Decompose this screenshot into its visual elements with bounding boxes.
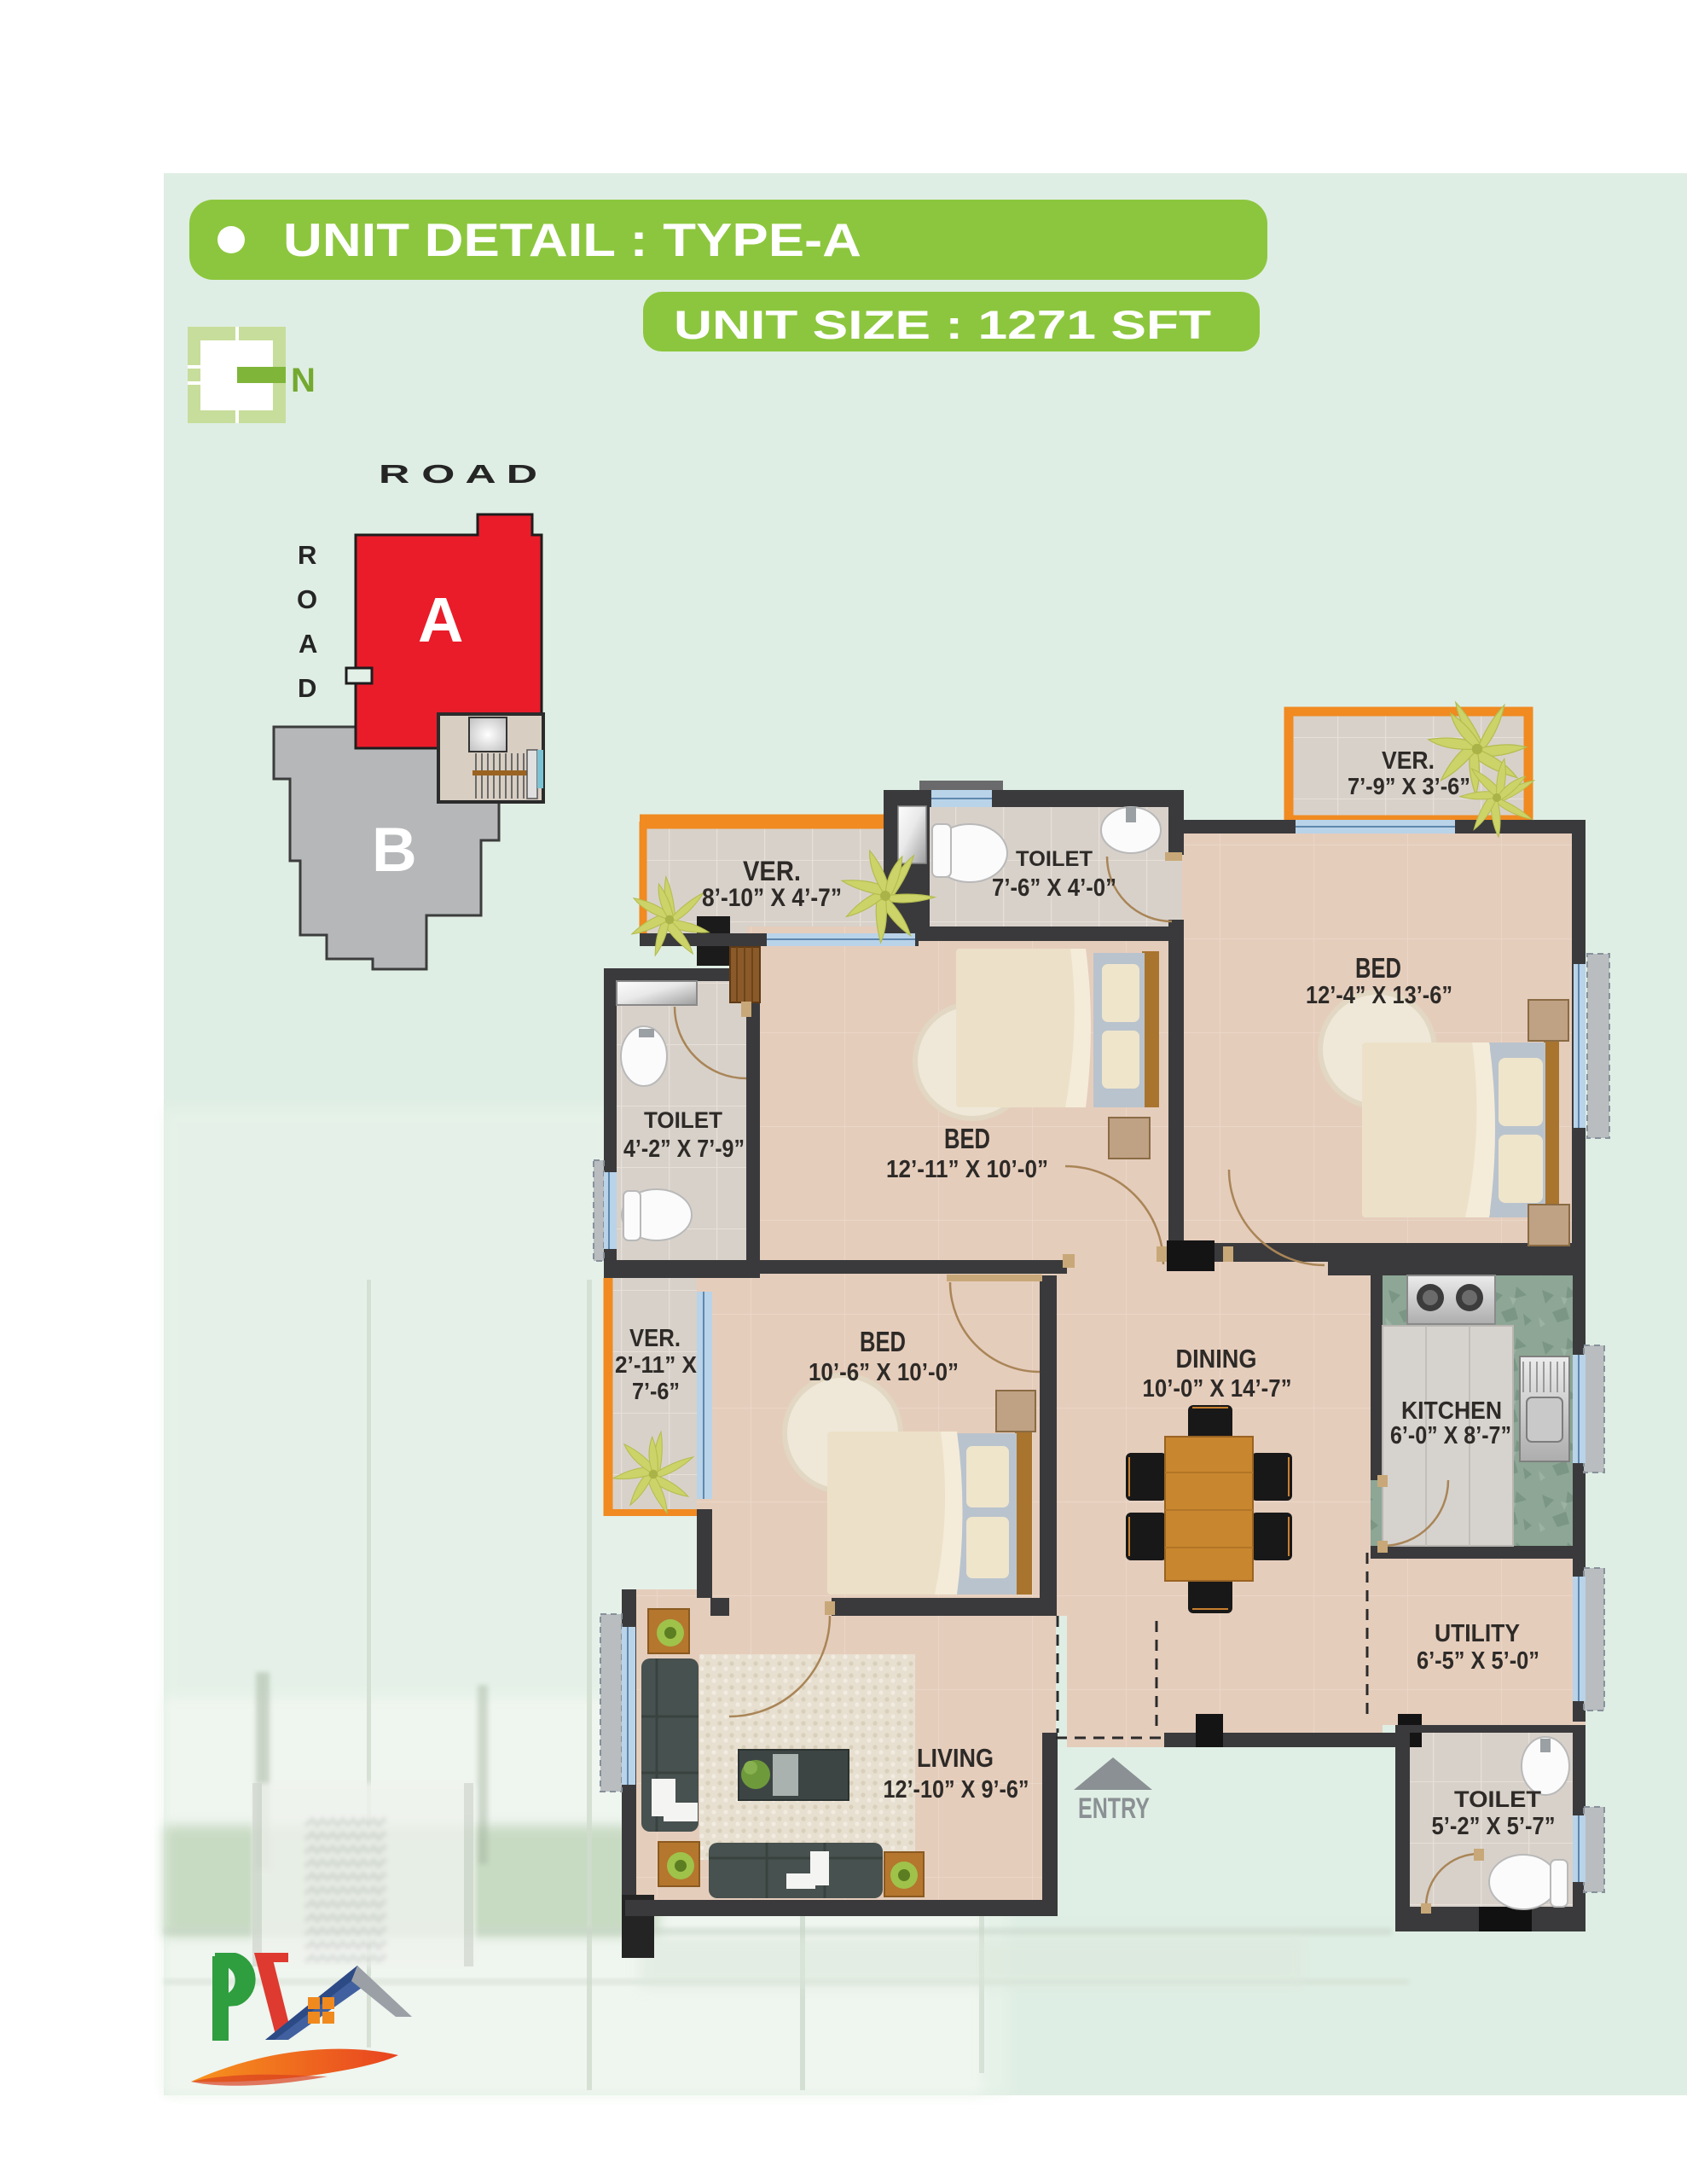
svg-text:UNIT SIZE : 1271 SFT: UNIT SIZE : 1271 SFT bbox=[674, 302, 1211, 347]
svg-text:VER.: VER. bbox=[629, 1325, 681, 1352]
svg-text:A: A bbox=[418, 584, 463, 655]
svg-text:TOILET: TOILET bbox=[644, 1107, 722, 1133]
svg-text:10’-0” X 14’-7”: 10’-0” X 14’-7” bbox=[1143, 1375, 1292, 1403]
svg-text:12’-11” X 10’-0”: 12’-11” X 10’-0” bbox=[886, 1156, 1048, 1183]
svg-text:10’-6” X 10’-0”: 10’-6” X 10’-0” bbox=[809, 1359, 959, 1386]
svg-text:VER.: VER. bbox=[743, 856, 801, 886]
svg-text:TOILET: TOILET bbox=[1454, 1786, 1542, 1812]
svg-text:2’-11” X: 2’-11” X bbox=[615, 1351, 697, 1378]
svg-text:5’-2” X 5’-7”: 5’-2” X 5’-7” bbox=[1432, 1813, 1556, 1840]
svg-text:O: O bbox=[297, 584, 317, 614]
svg-text:12’-10” X 9’-6”: 12’-10” X 9’-6” bbox=[884, 1776, 1029, 1804]
svg-text:VER.: VER. bbox=[1382, 747, 1435, 775]
svg-text:N: N bbox=[291, 362, 316, 399]
svg-text:8’-10” X 4’-7”: 8’-10” X 4’-7” bbox=[702, 884, 842, 912]
svg-text:TOILET: TOILET bbox=[1016, 847, 1093, 871]
svg-text:12’-4” X 13’-6”: 12’-4” X 13’-6” bbox=[1306, 982, 1452, 1009]
svg-text:KITCHEN: KITCHEN bbox=[1401, 1397, 1502, 1425]
svg-text:ENTRY: ENTRY bbox=[1078, 1792, 1150, 1825]
svg-text:BED: BED bbox=[860, 1326, 906, 1357]
svg-text:D: D bbox=[298, 673, 316, 703]
svg-text:BED: BED bbox=[1355, 952, 1401, 984]
svg-text:R O A D: R O A D bbox=[379, 459, 537, 489]
svg-text:UTILITY: UTILITY bbox=[1435, 1620, 1520, 1647]
svg-text:A: A bbox=[299, 629, 317, 659]
svg-text:UNIT DETAIL : TYPE-A: UNIT DETAIL : TYPE-A bbox=[283, 213, 861, 266]
svg-text:LIVING: LIVING bbox=[917, 1743, 994, 1773]
svg-text:7’-6”: 7’-6” bbox=[632, 1378, 680, 1404]
svg-text:6’-5” X 5’-0”: 6’-5” X 5’-0” bbox=[1417, 1647, 1539, 1675]
svg-text:DINING: DINING bbox=[1176, 1344, 1257, 1374]
svg-text:7’-6” X 4’-0”: 7’-6” X 4’-0” bbox=[992, 874, 1116, 902]
svg-text:4’-2” X 7’-9”: 4’-2” X 7’-9” bbox=[623, 1136, 745, 1163]
svg-text:B: B bbox=[372, 816, 417, 885]
svg-text:6’-0” X 8’-7”: 6’-0” X 8’-7” bbox=[1390, 1422, 1511, 1449]
svg-text:R: R bbox=[298, 540, 316, 570]
svg-text:7’-9” X 3’-6”: 7’-9” X 3’-6” bbox=[1348, 773, 1470, 799]
svg-text:BED: BED bbox=[944, 1123, 990, 1154]
